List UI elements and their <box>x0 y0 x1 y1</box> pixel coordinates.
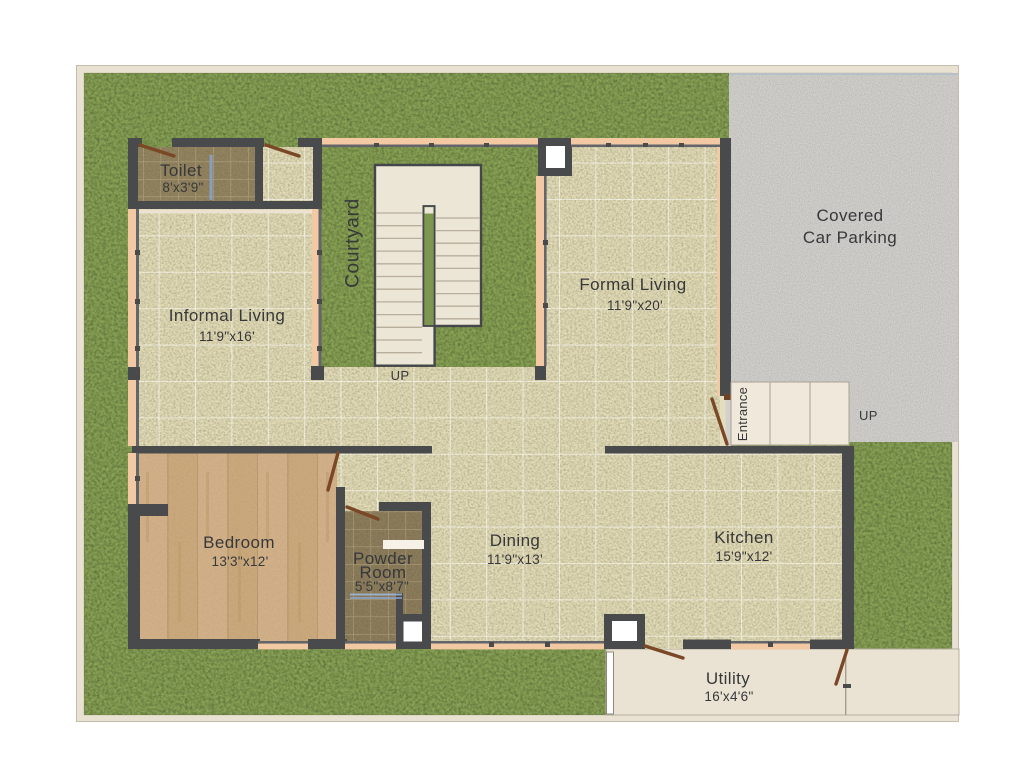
svg-text:15'9"x12': 15'9"x12' <box>716 549 773 564</box>
svg-text:11'9"x20': 11'9"x20' <box>607 298 663 313</box>
svg-text:Kitchen: Kitchen <box>714 528 774 547</box>
svg-text:Informal Living: Informal Living <box>169 306 286 325</box>
svg-text:Toilet: Toilet <box>160 161 202 180</box>
svg-text:Entrance: Entrance <box>735 387 750 441</box>
svg-text:Formal Living: Formal Living <box>579 275 686 294</box>
svg-text:8'x3'9": 8'x3'9" <box>162 180 203 195</box>
svg-text:Bedroom: Bedroom <box>203 533 275 552</box>
svg-text:Utility: Utility <box>706 669 750 688</box>
svg-text:5'5"x8'7": 5'5"x8'7" <box>355 579 409 594</box>
svg-text:16'x4'6": 16'x4'6" <box>704 689 753 704</box>
svg-text:13'3"x12': 13'3"x12' <box>212 554 269 569</box>
svg-text:UP: UP <box>391 368 410 383</box>
svg-text:Courtyard: Courtyard <box>343 198 364 288</box>
svg-text:11'9"x16': 11'9"x16' <box>199 329 255 344</box>
svg-text:11'9"x13': 11'9"x13' <box>487 552 543 567</box>
svg-text:Dining: Dining <box>490 531 541 550</box>
svg-text:Car Parking: Car Parking <box>803 228 897 247</box>
svg-text:Covered: Covered <box>816 206 883 225</box>
svg-text:UP: UP <box>859 408 878 423</box>
